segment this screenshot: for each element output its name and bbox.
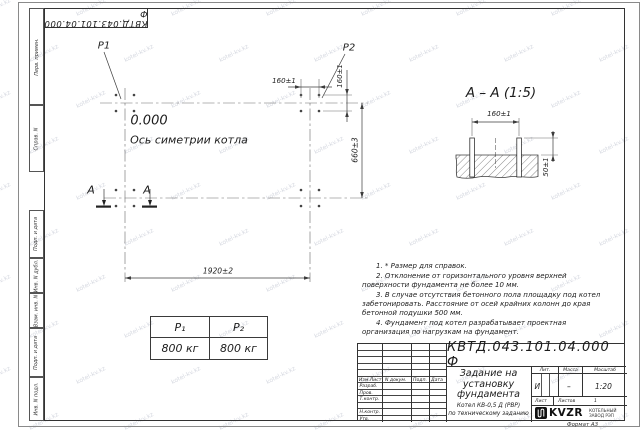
load-table-value-p2: 800 кг (209, 337, 267, 359)
rev-col-izm-list: Изм.Лист (359, 378, 381, 383)
doc-title-line1: Задание на (460, 369, 518, 380)
role-tkontr: Т.контр. (360, 397, 380, 402)
load-table-header-p1: P₁ (151, 317, 209, 337)
section-title: А – А (1:5) (466, 85, 536, 101)
concrete-block (456, 155, 538, 178)
sheets-value: 1 (594, 399, 597, 404)
plan-dim-660 (360, 103, 364, 198)
note-1: 1. * Размер для справок. (362, 262, 614, 271)
plan-dim-660-text: 660±3 (351, 137, 360, 162)
load-leaders (104, 52, 345, 99)
header-massa: Масса (558, 367, 582, 374)
plan-dim-1920-text: 1920±2 (203, 267, 233, 276)
section-letter-left: А (87, 184, 95, 197)
document-title-zone: Задание на установку фундамента Котел КВ… (446, 367, 531, 422)
load-point-p2-label: P2 (343, 43, 355, 54)
properties-zone: Лит. Масса Масштаб И – 1:20 Лист Листов … (531, 367, 626, 422)
drawing-sheet: kotel-kv.kzkotel-kv.kzkotel-kv.kzkotel-k… (0, 0, 644, 430)
section-letter-right: А (143, 184, 151, 197)
lit-value: И (535, 382, 541, 391)
plan-dim-160v-text: 160±1 (336, 64, 344, 88)
notes-block: 1. * Размер для справок. 2. Отклонение о… (362, 262, 614, 338)
rev-col-data: Дата (431, 378, 443, 383)
role-razrab: Разраб. (360, 384, 378, 389)
section-dim-50-text: 50±1 (542, 157, 550, 176)
role-prov: Пров. (360, 391, 373, 396)
company-line2: ЗАВОД РЭП (589, 413, 616, 418)
kvzr-logo-text: KVZR (549, 407, 583, 419)
title-block: Изм.Лист N докум. Подп. Дата Разраб. Про… (357, 343, 625, 421)
rev-col-n-dokum: N докум. (385, 378, 406, 383)
role-nkontr: Н.контр. (360, 410, 381, 415)
header-lit: Лит. (532, 367, 558, 374)
plan-dim-1920 (125, 276, 310, 280)
rev-col-podp: Подп. (413, 378, 427, 383)
anchor-bolt-right (517, 138, 522, 177)
doc-title-line3: фундамента (457, 390, 520, 401)
title-block-designation: КВТД.043.101.04.000 Ф (446, 344, 626, 367)
load-table-header-p2: P₂ (209, 317, 267, 337)
plan-dim-160h-text: 160±1 (272, 77, 296, 85)
note-3: 3. В случае отсутствия бетонного пола пл… (362, 291, 614, 318)
note-4: 4. Фундамент под котел разрабатывает про… (362, 319, 614, 337)
header-masshtab: Масштаб (582, 367, 627, 374)
mass-value: – (567, 382, 571, 391)
format-label: Формат А3 (535, 422, 630, 428)
anchor-bolt-left (470, 138, 475, 177)
kvzr-coil-icon (535, 407, 547, 419)
sheets-label: Листов (558, 399, 575, 404)
sheet-label: Лист (535, 399, 547, 404)
scale-value: 1:20 (595, 382, 612, 391)
load-table-value-p1: 800 кг (151, 337, 209, 359)
doc-subject-line1: Котел КВ-0,5 Д (РВР) (457, 403, 520, 409)
role-utv: Утв. (360, 417, 370, 422)
note-2: 2. Отклонение от горизонтального уровня … (362, 272, 614, 290)
load-table: P₁ P₂ 800 кг 800 кг (150, 316, 268, 360)
load-point-p1-label: P1 (98, 41, 110, 52)
boiler-symmetry-axis-caption: Ось симетрии котла (130, 134, 248, 147)
doc-subject-line2: по техническому заданию (448, 411, 529, 417)
elevation-mark: 0.000 (130, 114, 167, 129)
section-dim-160-text: 160±1 (487, 110, 511, 118)
